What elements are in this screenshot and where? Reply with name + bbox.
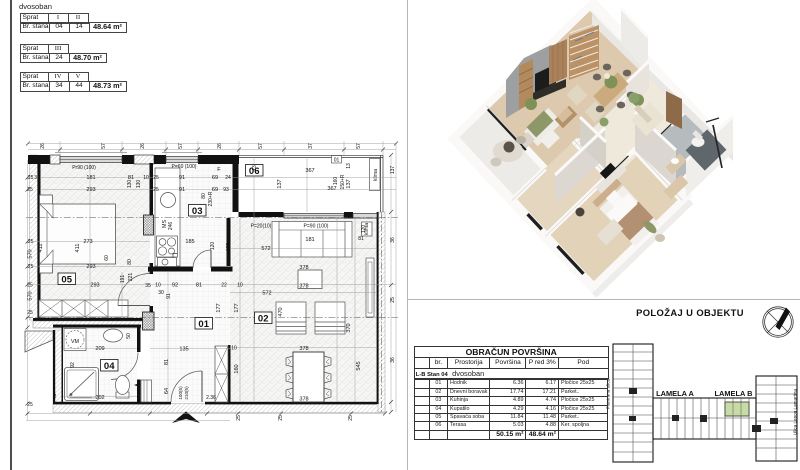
svg-text:02: 02 <box>258 313 269 324</box>
svg-text:80: 80 <box>127 259 133 265</box>
svg-text:150+R: 150+R <box>340 174 346 189</box>
svg-text:F: F <box>217 167 221 173</box>
svg-text:10: 10 <box>155 282 161 288</box>
svg-text:01: 01 <box>198 319 209 330</box>
svg-text:230+R: 230+R <box>208 191 214 206</box>
svg-text:378: 378 <box>299 265 308 271</box>
svg-text:25: 25 <box>27 402 33 408</box>
svg-text:25: 25 <box>278 415 284 421</box>
svg-text:137: 137 <box>390 166 396 175</box>
svg-text:25: 25 <box>27 187 33 193</box>
svg-text:69: 69 <box>212 175 218 181</box>
svg-text:470: 470 <box>278 307 284 316</box>
svg-text:378: 378 <box>299 397 308 403</box>
svg-text:91: 91 <box>179 175 185 181</box>
svg-text:135: 135 <box>179 347 188 353</box>
svg-text:210(5): 210(5) <box>184 386 189 400</box>
svg-text:30: 30 <box>158 290 164 296</box>
svg-text:202: 202 <box>95 395 104 401</box>
svg-text:367: 367 <box>327 186 336 192</box>
svg-text:378: 378 <box>299 346 308 352</box>
svg-text:411: 411 <box>38 244 44 253</box>
svg-text:160: 160 <box>333 177 339 186</box>
svg-text:185: 185 <box>185 239 194 245</box>
svg-text:93: 93 <box>223 187 229 193</box>
svg-text:10: 10 <box>143 175 149 181</box>
svg-text:klima: klima <box>373 169 379 181</box>
svg-text:81: 81 <box>196 282 202 288</box>
svg-text:209: 209 <box>95 346 104 352</box>
svg-text:01: 01 <box>334 158 340 164</box>
svg-text:36: 36 <box>390 357 396 363</box>
svg-text:130: 130 <box>136 180 142 189</box>
svg-text:LAMELA B: LAMELA B <box>715 389 753 398</box>
svg-text:10: 10 <box>231 346 237 352</box>
svg-text:572: 572 <box>262 291 271 297</box>
svg-text:57: 57 <box>101 143 107 149</box>
svg-text:411: 411 <box>75 244 81 253</box>
svg-text:181: 181 <box>86 175 95 181</box>
svg-text:293: 293 <box>86 187 95 193</box>
svg-text:545: 545 <box>356 361 362 370</box>
svg-text:100(5): 100(5) <box>178 386 183 400</box>
svg-text:293: 293 <box>86 264 95 270</box>
svg-text:25: 25 <box>153 187 159 193</box>
svg-text:.25: .25 <box>27 175 34 181</box>
svg-text:35: 35 <box>145 283 151 289</box>
svg-text:24: 24 <box>225 175 231 181</box>
svg-text:P=20(10): P=20(10) <box>251 224 272 230</box>
svg-text:81: 81 <box>164 359 170 365</box>
svg-text:05: 05 <box>61 274 72 285</box>
svg-text:25: 25 <box>153 175 159 181</box>
svg-text:25: 25 <box>390 297 396 303</box>
svg-text:367: 367 <box>305 168 314 174</box>
svg-text:177: 177 <box>216 303 222 312</box>
svg-text:81: 81 <box>358 236 364 242</box>
svg-text:03: 03 <box>192 206 203 217</box>
svg-text:570: 570 <box>28 291 34 300</box>
svg-text:293: 293 <box>90 282 99 288</box>
svg-text:130: 130 <box>127 180 133 189</box>
svg-text:10: 10 <box>148 267 154 273</box>
svg-text:57: 57 <box>356 143 362 149</box>
svg-text:177: 177 <box>234 303 240 312</box>
svg-text:25: 25 <box>348 415 354 421</box>
svg-text:37: 37 <box>308 143 314 149</box>
svg-text:137: 137 <box>346 179 352 188</box>
svg-text:91: 91 <box>166 293 172 299</box>
svg-text:120: 120 <box>361 225 367 234</box>
svg-text:P=60 (100): P=60 (100) <box>172 164 197 170</box>
svg-text:25: 25 <box>27 310 33 316</box>
svg-text:137: 137 <box>277 179 283 188</box>
svg-text:.25: .25 <box>27 264 34 270</box>
svg-text:VM: VM <box>71 339 80 345</box>
svg-text:13: 13 <box>346 163 352 169</box>
svg-text:26: 26 <box>217 143 223 149</box>
svg-text:57: 57 <box>258 143 264 149</box>
svg-text:P=90 (100): P=90 (100) <box>304 224 329 230</box>
svg-text:13: 13 <box>252 165 258 171</box>
svg-text:221: 221 <box>128 273 134 282</box>
svg-text:Pr90 (100): Pr90 (100) <box>72 165 96 171</box>
svg-text:246: 246 <box>168 222 174 231</box>
svg-text:36: 36 <box>390 237 396 243</box>
svg-text:378: 378 <box>299 284 308 290</box>
svg-text:572: 572 <box>261 246 270 252</box>
svg-text:60: 60 <box>104 255 110 261</box>
svg-text:10: 10 <box>237 282 243 288</box>
svg-text:64: 64 <box>164 388 170 394</box>
svg-text:370: 370 <box>346 323 352 332</box>
svg-text:133: 133 <box>226 243 232 252</box>
svg-text:2.36: 2.36 <box>206 395 216 401</box>
svg-text:80: 80 <box>201 193 207 199</box>
svg-text:191: 191 <box>120 275 126 284</box>
svg-text:57: 57 <box>178 143 184 149</box>
svg-text:04: 04 <box>104 361 115 372</box>
svg-text:273: 273 <box>83 239 92 245</box>
svg-text:120: 120 <box>210 242 216 251</box>
svg-text:Ulica Lepog Lamartina: Ulica Lepog Lamartina <box>793 389 798 435</box>
svg-text:26: 26 <box>140 143 146 149</box>
svg-text:22: 22 <box>221 282 227 288</box>
svg-text:LAMELA A: LAMELA A <box>656 389 694 398</box>
svg-text:92: 92 <box>70 362 76 368</box>
svg-text:50: 50 <box>126 333 132 339</box>
svg-text:31: 31 <box>34 175 40 181</box>
svg-text:181: 181 <box>305 237 314 243</box>
svg-text:160: 160 <box>234 364 240 373</box>
svg-text:25: 25 <box>27 282 33 288</box>
svg-text:26: 26 <box>40 143 46 149</box>
svg-text:2: 2 <box>54 394 57 400</box>
svg-text:.25: .25 <box>27 239 34 245</box>
svg-text:25: 25 <box>236 415 242 421</box>
svg-text:91: 91 <box>179 187 185 193</box>
svg-text:92: 92 <box>172 282 178 288</box>
svg-text:570: 570 <box>28 249 34 258</box>
